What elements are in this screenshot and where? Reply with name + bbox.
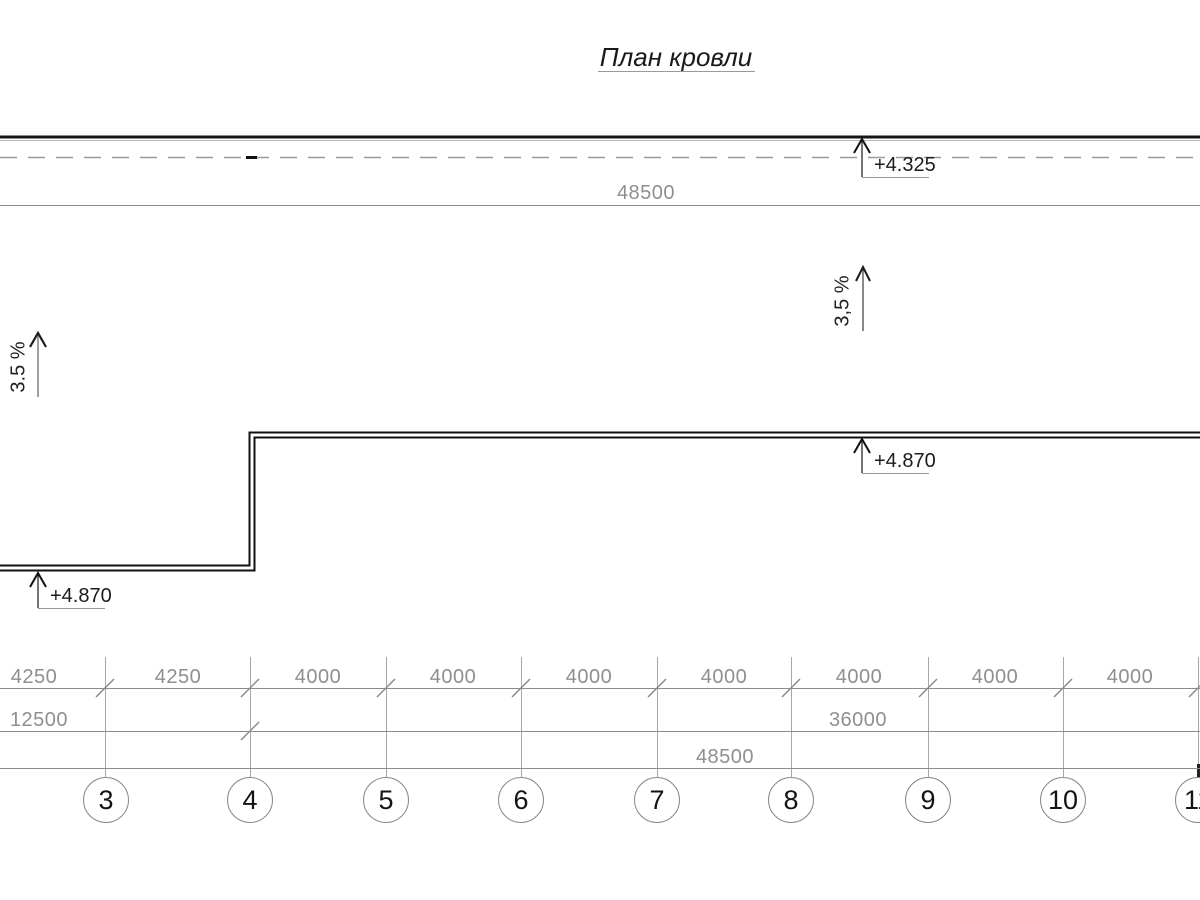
axis-bubble-7-number: 7 [649,785,664,816]
elevation-label-4870-left: +4.870 [50,585,112,608]
axis-bubble-8-number: 8 [783,785,798,816]
slope-left-label: 3.5 % [8,341,31,392]
roof-plan-drawing [0,0,1200,900]
axis-bubble-9: 9 [905,777,951,823]
elevation-label-4870-right: +4.870 [874,450,936,473]
roof-edge-inner-gap [0,435,1200,568]
dim-row1-label: 4000 [972,666,1019,689]
axis-bubble-4: 4 [227,777,273,823]
elevation-label-4325: +4.325 [874,154,936,177]
dim-row1-label: 4250 [11,666,58,689]
axis-bubble-9-number: 9 [920,785,935,816]
axis-bubble-6: 6 [498,777,544,823]
axis-bubble-5-number: 5 [378,785,393,816]
dim-row1-label: 4000 [566,666,613,689]
roof-edge-outer [0,435,1200,568]
dim-row1-label: 4000 [430,666,477,689]
title-underline [598,71,755,72]
dim-row1-label: 4000 [295,666,342,689]
dim-row1-label: 4000 [836,666,883,689]
axis-bubble-10-number: 10 [1048,785,1078,816]
axis-bubble-10: 10 [1040,777,1086,823]
dim-label-top-48500: 48500 [617,182,675,205]
page-title: План кровли [600,42,753,73]
dim-row3-label: 48500 [696,746,754,769]
axis-bubble-7: 7 [634,777,680,823]
axis-extension-lines [106,657,1199,777]
dim-row1-label: 4250 [155,666,202,689]
slope-right-label: 3,5 % [832,275,855,326]
dim-row2-label: 12500 [10,709,68,732]
axis-bubble-8: 8 [768,777,814,823]
axis-bubble-3-number: 3 [98,785,113,816]
axis-bubble-6-number: 6 [513,785,528,816]
dim-row2-label: 36000 [829,709,887,732]
dim-row1-label: 4000 [1107,666,1154,689]
axis-bubble-11-number: 11 [1184,785,1200,816]
dim-row1-label: 4000 [701,666,748,689]
axis-bubble-4-number: 4 [242,785,257,816]
axis-bubble-5: 5 [363,777,409,823]
axis-bubble-3: 3 [83,777,129,823]
